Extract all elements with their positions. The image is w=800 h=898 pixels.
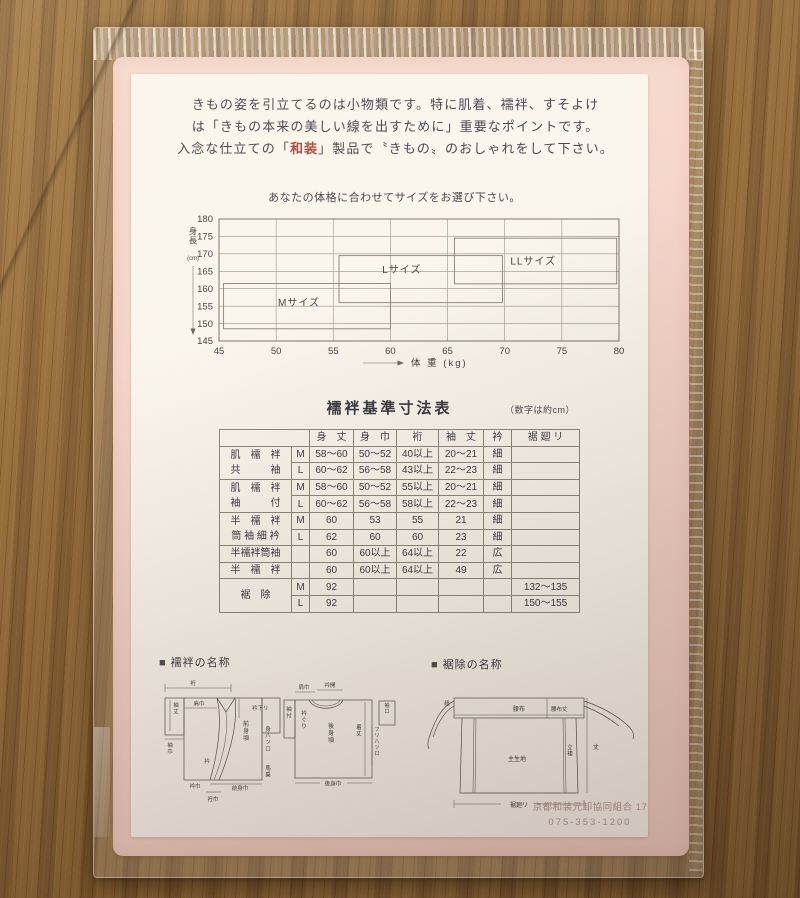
label-sodetsuke: 袖付 (286, 705, 292, 720)
square-bullet-icon: ■ (431, 659, 439, 671)
value-cell (512, 463, 580, 480)
square-bullet-icon: ■ (159, 657, 167, 669)
juban-back-labels: 肩巾 衿開 袖付 衿ぐり 後身頃 着丈 袖口 フリ八ツ口 後身巾 (286, 681, 389, 788)
value-cell: 細 (484, 512, 512, 529)
item-name-cell: 肌 襦 袢袖 付 (220, 479, 292, 512)
size-box-label-Lサイズ: Lサイズ (382, 263, 421, 276)
item-name-cell: 裾 除 (220, 579, 292, 612)
chart-xtick-label: 75 (557, 346, 568, 357)
dimension-table-unit-note: （数字は約cm） (505, 403, 575, 416)
chart-ytick-label: 165 (197, 266, 213, 277)
value-cell (512, 496, 580, 513)
value-cell: 21 (439, 512, 484, 529)
value-cell: 60 (397, 529, 439, 546)
juban-diagram-title: ■襦袢の名称 (159, 654, 231, 670)
value-cell: L (292, 463, 310, 480)
size-chart-title: あなたの体格に合わせてサイズをお選び下さい。 (131, 189, 648, 205)
dimension-table-title: 襦袢基準寸法表 (131, 397, 648, 418)
juban-front-measure-lines (165, 684, 262, 792)
value-cell: 広 (484, 562, 512, 579)
value-cell (354, 579, 397, 596)
size-box-label-LLサイズ: LLサイズ (510, 254, 556, 267)
table-row: 半 襦 袢6060以上64以上49広 (220, 562, 580, 579)
value-cell: 49 (439, 562, 484, 579)
label-susomawari: 裾廻リ (510, 801, 528, 809)
label-ushiromihaba: 後身巾 (325, 780, 342, 788)
value-cell (292, 562, 310, 579)
value-cell: 40以上 (397, 446, 439, 463)
column-header: 衿 (484, 430, 512, 447)
value-cell: 22〜23 (439, 463, 484, 480)
table-row: L60〜6256〜5858以上22〜23細 (220, 496, 580, 513)
intro-line-3: 入念な仕立ての「和装」製品で〝きもの〟のおしゃれをして下さい。 (143, 138, 648, 160)
column-header: 身 巾 (354, 430, 397, 447)
label-himo: 紐 (444, 699, 450, 707)
value-cell: 58〜60 (310, 446, 354, 463)
value-cell (397, 595, 439, 612)
plastic-bag: きもの姿を引立てるのは小物類です。特に肌着、襦袢、すそよけ は「きもの本来の美し… (93, 27, 704, 878)
chart-ytick-label: 155 (197, 301, 213, 312)
chart-ytick-label: 160 (197, 284, 213, 295)
value-cell: 60 (310, 562, 354, 579)
item-name-cell: 半 襦 袢筒 袖 細 衿 (220, 512, 292, 545)
value-cell (439, 579, 484, 596)
juban-back-outline (284, 700, 395, 778)
susoyoke-diagram-title: ■裾除の名称 (431, 656, 503, 672)
bag-fold-corner (94, 727, 110, 837)
item-name-cell: 半 襦 袢 (220, 562, 292, 579)
y-axis-arrowhead (191, 329, 196, 336)
value-cell: 56〜58 (354, 496, 397, 513)
juban-front-labels: 裄 袖丈 袖巾 肩巾 衿下リ 前身頃 衿 身八ツ口 馬乗 衿巾 前身巾 衽巾 (167, 679, 271, 803)
label-koshinuno-take: 腰布丈 (551, 705, 568, 713)
value-cell: 132〜135 (512, 579, 580, 596)
value-cell: 58〜60 (310, 479, 354, 496)
value-cell: L (292, 595, 310, 612)
label-sodetake: 袖丈 (173, 701, 179, 716)
value-cell: 50〜52 (354, 479, 397, 496)
value-cell: 60 (310, 546, 354, 563)
label-yuki: 裄 (190, 679, 196, 687)
y-axis-label: 身長 (189, 226, 198, 246)
label-katahaba-front: 肩巾 (193, 700, 204, 708)
column-header: 袖 丈 (439, 430, 484, 447)
bag-crinkle-top-edge (94, 28, 703, 60)
value-cell: M (292, 579, 310, 596)
value-cell: 60以上 (354, 546, 397, 563)
value-cell (397, 579, 439, 596)
susoyoke-measure-lines (454, 698, 587, 808)
value-cell: 20〜21 (439, 479, 484, 496)
value-cell: 150〜155 (512, 595, 580, 612)
value-cell: L (292, 496, 310, 513)
item-name-cell: 肌 襦 袢共 袖 (220, 446, 292, 479)
value-cell (512, 529, 580, 546)
value-cell: 92 (310, 595, 354, 612)
value-cell: 60 (354, 529, 397, 546)
value-cell: 細 (484, 446, 512, 463)
table-row: L60〜6256〜5843以上22〜23細 (220, 463, 580, 480)
label-miyatsuguchi: 身八ツ口 (265, 725, 271, 753)
value-cell: 55以上 (397, 479, 439, 496)
chart-plot-area: 1451501551601651701751804550556065707580… (197, 214, 624, 357)
table-row: L92150〜155 (220, 595, 580, 612)
value-cell: M (292, 446, 310, 463)
value-cell: M (292, 512, 310, 529)
instruction-sheet: きもの姿を引立てるのは小物類です。特に肌着、襦袢、すそよけ は「きもの本来の美し… (131, 74, 648, 837)
table-row: 半襦袢筒袖6060以上64以上22広 (220, 546, 580, 563)
maker-stamp-name: 京都和装元卸協同組合 17 (527, 800, 653, 815)
value-cell (512, 446, 580, 463)
label-ushiromigoro: 後身頃 (328, 722, 334, 744)
value-cell (292, 546, 310, 563)
value-cell: M (292, 479, 310, 496)
chart-xtick-label: 70 (499, 346, 510, 357)
bag-crinkle-right-edge (689, 48, 703, 871)
value-cell: 43以上 (397, 463, 439, 480)
value-cell (439, 595, 484, 612)
value-cell: 60〜62 (310, 463, 354, 480)
value-cell (512, 479, 580, 496)
value-cell: 60以上 (354, 562, 397, 579)
value-cell (484, 595, 512, 612)
value-cell: 60〜62 (310, 496, 354, 513)
chart-xtick-label: 60 (385, 346, 396, 357)
susoyoke-labels: 紐 腰布 腰布丈 主生地 立褄 丈 裾廻リ (444, 699, 599, 809)
x-axis-label: 体 重 (kg) (411, 357, 468, 369)
value-cell: 62 (310, 529, 354, 546)
table-row: 肌 襦 袢袖 付M58〜6050〜5255以上20〜21細 (220, 479, 580, 496)
label-furiyatsuguchi: フリ八ツ口 (374, 727, 379, 757)
pink-backing-sheet: きもの姿を引立てるのは小物類です。特に肌着、襦袢、すそよけ は「きもの本来の美し… (113, 57, 689, 856)
column-header: 裄 (397, 430, 439, 447)
label-sodeguchi: 袖口 (384, 702, 389, 715)
juban-dimension-table: 身 丈身 巾裄袖 丈衿裾 廻 リ肌 襦 袢共 袖M58〜6050〜5240以上2… (219, 429, 580, 613)
value-cell: 50〜52 (354, 446, 397, 463)
chart-ytick-label: 170 (197, 249, 213, 260)
label-katahaba-back: 肩巾 (298, 683, 309, 691)
label-omokiji: 主生地 (508, 755, 526, 763)
maker-stamp-phone: 075-353-1200 (527, 815, 653, 830)
label-okumihaba: 衽巾 (207, 795, 218, 803)
susoyoke-outline (428, 698, 634, 793)
chart-xtick-label: 45 (214, 346, 225, 357)
table-row: 裾 除M92132〜135 (220, 579, 580, 596)
label-eriaki: 衿開 (324, 681, 336, 689)
susoyoke-parts-diagram: 紐 腰布 腰布丈 主生地 立褄 丈 裾廻リ (427, 673, 647, 813)
intro-text: きもの姿を引立てるのは小物類です。特に肌着、襦袢、すそよけ は「きもの本来の美し… (131, 94, 648, 160)
value-cell (354, 595, 397, 612)
table-row: 肌 襦 袢共 袖M58〜6050〜5240以上20〜21細 (220, 446, 580, 463)
label-koshinuno: 腰布 (513, 705, 525, 713)
value-cell: 56〜58 (354, 463, 397, 480)
label-eri: 衿 (204, 757, 210, 765)
chart-ytick-label: 145 (197, 336, 213, 347)
size-box-Lサイズ (339, 256, 502, 303)
value-cell: 細 (484, 479, 512, 496)
table-row: 半 襦 袢筒 袖 細 衿M60535521細 (220, 512, 580, 529)
y-axis-unit: (cm) (187, 256, 199, 262)
juban-back-measure-lines (295, 690, 372, 783)
table-row: L62606023細 (220, 529, 580, 546)
chart-frame (219, 219, 619, 341)
value-cell: 22〜23 (439, 496, 484, 513)
size-box-Mサイズ (224, 283, 391, 328)
value-cell: 細 (484, 463, 512, 480)
label-maemihaba: 前身巾 (232, 784, 249, 792)
wasou-red-text: 和装 (290, 141, 318, 156)
label-maemigoro: 前身頃 (243, 720, 249, 742)
chart-xtick-label: 50 (271, 346, 282, 357)
chart-ytick-label: 180 (197, 214, 213, 225)
label-erihaba: 衿巾 (189, 782, 200, 790)
juban-parts-diagram: 裄 袖丈 袖巾 肩巾 衿下リ 前身頃 衿 身八ツ口 馬乗 衿巾 前身巾 衽巾 (157, 671, 407, 813)
value-cell: 22 (439, 546, 484, 563)
column-header: 裾 廻 リ (512, 430, 580, 447)
chart-xtick-label: 55 (328, 346, 339, 357)
column-header: 身 丈 (310, 430, 354, 447)
label-kitake: 着丈 (356, 723, 362, 738)
value-cell: 55 (397, 512, 439, 529)
header-blank-cell (220, 430, 310, 447)
label-tatetsuma: 立褄 (567, 743, 573, 758)
label-sodehaba: 袖巾 (167, 741, 173, 756)
value-cell: 細 (484, 529, 512, 546)
value-cell: 細 (484, 496, 512, 513)
label-take: 丈 (593, 743, 599, 751)
value-cell: 64以上 (397, 562, 439, 579)
chart-xtick-label: 80 (614, 346, 625, 357)
value-cell (512, 512, 580, 529)
size-box-LLサイズ (454, 238, 616, 284)
size-selection-chart: 1451501551601651701751804550556065707580… (171, 204, 631, 372)
label-erisagari: 衿下リ (252, 704, 269, 712)
value-cell: 64以上 (397, 546, 439, 563)
intro-line-2: は「きもの本来の美しい線を出すために」重要なポイントです。 (143, 116, 648, 138)
value-cell: 60 (310, 512, 354, 529)
value-cell: L (292, 529, 310, 546)
label-umanori: 馬乗 (265, 765, 271, 779)
chart-ytick-label: 175 (197, 232, 213, 243)
juban-front-outline (165, 698, 280, 780)
x-axis-arrowhead (398, 361, 405, 366)
intro-line-1: きもの姿を引立てるのは小物類です。特に肌着、襦袢、すそよけ (143, 94, 648, 116)
value-cell (484, 579, 512, 596)
value-cell (512, 546, 580, 563)
value-cell: 58以上 (397, 496, 439, 513)
value-cell: 20〜21 (439, 446, 484, 463)
value-cell: 92 (310, 579, 354, 596)
value-cell: 53 (354, 512, 397, 529)
chart-ytick-label: 150 (197, 319, 213, 330)
value-cell (512, 562, 580, 579)
table-header-row: 身 丈身 巾裄袖 丈衿裾 廻 リ (220, 430, 580, 447)
chart-xtick-label: 65 (442, 346, 453, 357)
item-name-cell: 半襦袢筒袖 (220, 546, 292, 563)
value-cell: 23 (439, 529, 484, 546)
maker-stamp: 京都和装元卸協同組合 17 075-353-1200 (527, 800, 653, 830)
wooden-table: きもの姿を引立てるのは小物類です。特に肌着、襦袢、すそよけ は「きもの本来の美し… (0, 0, 800, 898)
value-cell: 広 (484, 546, 512, 563)
label-eriguri: 衿ぐり (301, 709, 307, 730)
size-box-label-Mサイズ: Mサイズ (278, 296, 320, 309)
